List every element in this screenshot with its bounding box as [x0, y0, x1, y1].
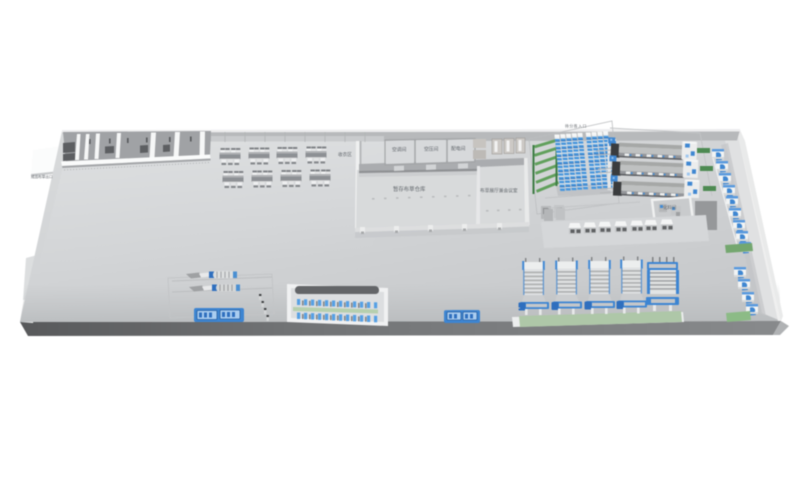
svg-text:空压间: 空压间 — [424, 146, 439, 153]
svg-text:空调间: 空调间 — [392, 146, 407, 153]
svg-text:布草展厅兼会议室: 布草展厅兼会议室 — [480, 187, 518, 194]
svg-text:配电间: 配电间 — [451, 145, 466, 152]
svg-text:化料间: 化料间 — [663, 204, 676, 211]
svg-text:暂存布草仓库: 暂存布草仓库 — [393, 185, 426, 193]
svg-text:收衣区: 收衣区 — [338, 151, 352, 158]
svg-text:成品布草出口: 成品布草出口 — [31, 174, 53, 179]
svg-text:待分拣入口: 待分拣入口 — [565, 124, 587, 129]
